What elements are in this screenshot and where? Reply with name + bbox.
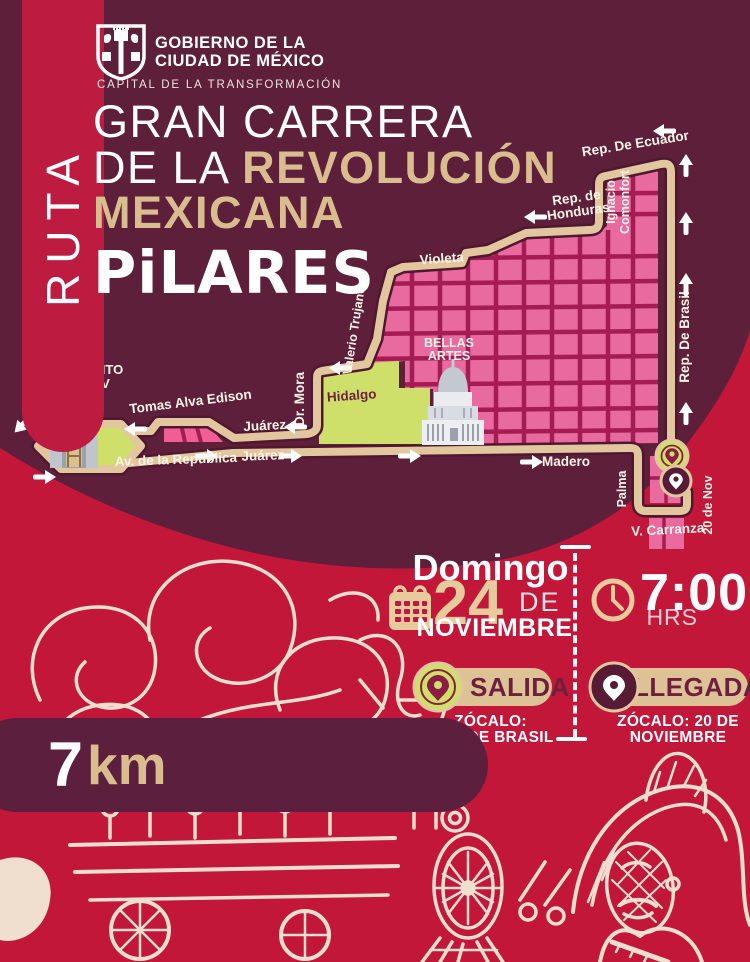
government-name: GOBIERNO DE LA CIUDAD DE MÉXICO — [155, 35, 324, 70]
llegada-pin-icon — [588, 661, 640, 713]
title-line2-prefix: DE LA — [93, 142, 242, 193]
clock-icon — [590, 577, 636, 623]
street-label-dr-mora: Dr. Mora — [292, 372, 307, 427]
llegada-location-line1: ZÓCALO: 20 DE — [598, 714, 750, 730]
llegada-location-line2: NOVIEMBRE — [598, 730, 750, 746]
street-label-brasil: Rep. De Brasil — [677, 291, 692, 383]
poi-label-bellas-artes: BELLASARTES — [424, 336, 474, 363]
salida-label: SALIDA — [470, 672, 570, 703]
government-tagline: CAPITAL DE LA TRANSFORMACIÓN — [97, 79, 342, 91]
title-line2: DE LA REVOLUCIÓN — [93, 145, 557, 191]
event-time-unit: HRS — [643, 604, 698, 631]
salida-pin-icon — [412, 661, 464, 713]
street-label-madero: Madero — [542, 454, 590, 469]
llegada-location: ZÓCALO: 20 DE NOVIEMBRE — [598, 714, 750, 746]
distance-badge: 7 km — [0, 718, 488, 812]
government-name-line1: GOBIERNO DE LA — [155, 35, 324, 53]
street-label-juarez-west: Juárez — [243, 417, 287, 434]
event-month: NOVIEMBRE — [402, 614, 587, 643]
street-label-20-nov: 20 de Nov — [701, 475, 715, 534]
street-label-palma: Palma — [615, 470, 629, 508]
finish-pin — [661, 466, 691, 496]
distance-value: 7 — [48, 729, 83, 801]
title-line3: MEXICANA — [93, 190, 557, 236]
cdmx-shield-icon — [92, 22, 150, 80]
poster-title: GRAN CARRERA DE LA REVOLUCIÓN MEXICANA P… — [93, 99, 557, 305]
street-label-juarez-east: Juárez — [241, 447, 285, 463]
llegada-label: LLEGADA — [633, 672, 750, 703]
title-line1: GRAN CARRERA — [93, 99, 557, 145]
race-poster: Rep. De Ecuador Rep. deHonduras IgnacioC… — [0, 0, 750, 962]
pilares-logo: PiLARES — [93, 241, 557, 305]
government-name-line2: CIUDAD DE MÉXICO — [155, 53, 324, 71]
distance-unit: km — [87, 733, 167, 797]
title-line2-accent: REVOLUCIÓN — [242, 142, 557, 193]
